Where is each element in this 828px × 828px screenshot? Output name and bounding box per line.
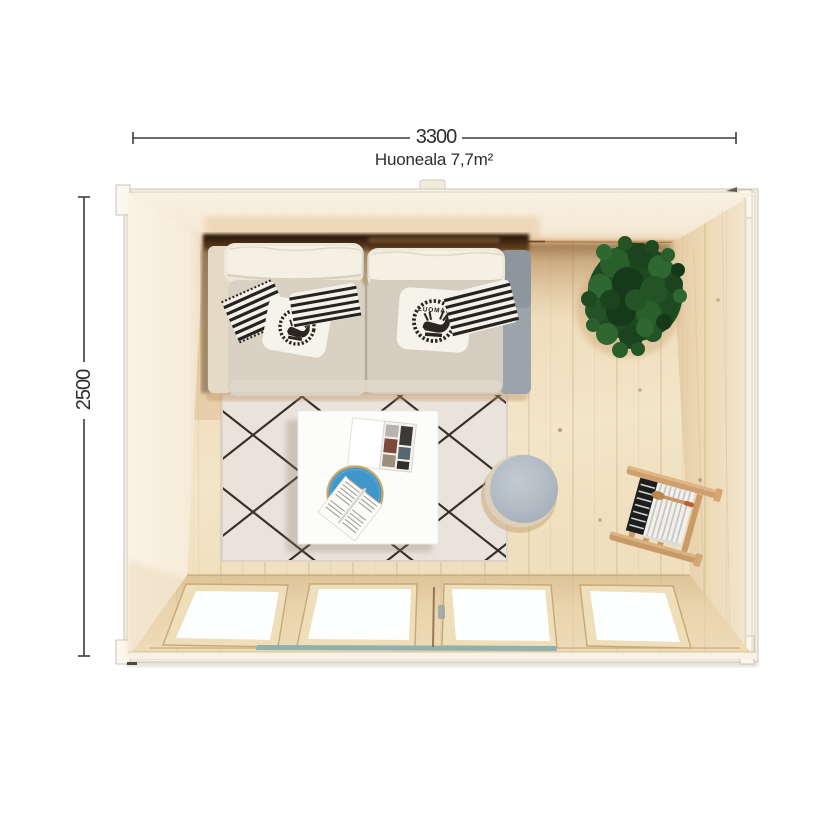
svg-text:Huoneala 7,7m²: Huoneala 7,7m² (375, 150, 494, 169)
svg-text:3300: 3300 (416, 126, 457, 148)
svg-text:2500: 2500 (73, 369, 95, 410)
